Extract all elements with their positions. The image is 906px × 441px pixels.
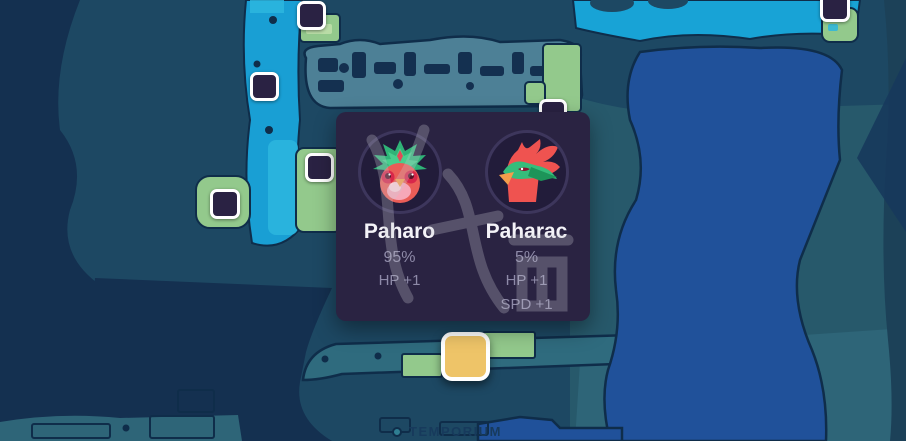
stat-bonus: HP +1 — [379, 269, 421, 293]
spawn-marker-selected[interactable] — [441, 332, 490, 381]
stat-bonus: SPD +1 — [500, 293, 552, 317]
paharo-sprite — [364, 136, 436, 208]
species-name: Paharo — [364, 219, 435, 244]
species-name: Paharac — [486, 219, 568, 244]
terrain-river-head — [250, 0, 284, 13]
spawn-marker-3[interactable] — [305, 153, 334, 182]
region-label: TEMPORIUM — [392, 424, 502, 439]
spawn-marker-4[interactable] — [210, 189, 240, 219]
spawn-chance: 5% — [515, 246, 538, 269]
region-label-text: TEMPORIUM — [409, 424, 502, 439]
world-map[interactable]: TEMPORIUM — [0, 0, 906, 441]
paharac-sprite — [491, 136, 563, 208]
spawn-tooltip: Paharo 95% HP +1 Paharac 5% HP +1 SPD +1 — [336, 112, 590, 321]
stat-bonus: HP +1 — [506, 269, 548, 293]
spawn-marker-6[interactable] — [820, 0, 850, 22]
spawn-chance: 95% — [383, 246, 415, 269]
paharac-portrait — [485, 130, 569, 214]
terrain-lake — [604, 47, 842, 441]
paharo-portrait — [358, 130, 442, 214]
spawn-entry-paharo: Paharo 95% HP +1 — [336, 112, 463, 321]
region-dot-icon — [392, 427, 402, 437]
spawn-marker-2[interactable] — [250, 72, 279, 101]
terrain-river-shallow — [268, 140, 298, 235]
spawn-entry-paharac: Paharac 5% HP +1 SPD +1 — [463, 112, 590, 321]
spawn-marker-1[interactable] — [297, 1, 326, 30]
